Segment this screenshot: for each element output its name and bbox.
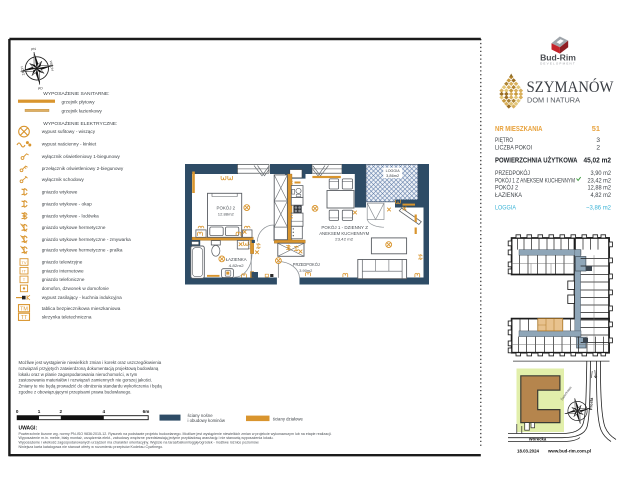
svg-text:SZYMANÓW: SZYMANÓW xyxy=(527,79,614,96)
svg-text:UWAGI:: UWAGI: xyxy=(19,425,38,431)
svg-text:grzejnik łazienkowy: grzejnik łazienkowy xyxy=(62,109,103,114)
svg-text:6m: 6m xyxy=(143,409,150,414)
svg-text:TV: TV xyxy=(21,260,26,265)
svg-text:Worecka: Worecka xyxy=(529,437,547,442)
svg-text:ŁAZIENKA: ŁAZIENKA xyxy=(495,192,523,199)
svg-text:tablica bezpiecznikowa mieszka: tablica bezpiecznikowa mieszkaniowa xyxy=(42,306,121,311)
svg-text:domofon, dzwonek w domofonie: domofon, dzwonek w domofonie xyxy=(42,286,110,291)
svg-text:3: 3 xyxy=(596,137,600,144)
svg-text:Zmiany te nie będą prowadzić d: Zmiany te nie będą prowadzić do obniżeni… xyxy=(19,384,163,389)
svg-text:LICZBA POKOI: LICZBA POKOI xyxy=(495,145,532,152)
svg-text:DOM I NATURA: DOM I NATURA xyxy=(527,96,581,105)
svg-text:www.bud-rim.com.pl: www.bud-rim.com.pl xyxy=(547,448,591,453)
svg-text:wypust zasilający - kuchnia in: wypust zasilający - kuchnia indukcyjna xyxy=(42,295,122,300)
svg-text:Wyposażenie m.in. meble, biały: Wyposażenie m.in. meble, biały montaż, u… xyxy=(19,436,274,440)
svg-text:1: 1 xyxy=(38,409,41,414)
svg-text:Możliwe jest wystąpienie niewi: Możliwe jest wystąpienie niewielkich zmi… xyxy=(19,360,162,365)
svg-text:45,02 m2: 45,02 m2 xyxy=(584,156,612,165)
svg-text:0: 0 xyxy=(16,409,19,414)
svg-text:wypust naścienny - kinkiet: wypust naścienny - kinkiet xyxy=(42,142,97,147)
svg-text:gniazdo wtykowe - okap: gniazdo wtykowe - okap xyxy=(42,202,92,207)
svg-text:IT: IT xyxy=(22,269,26,274)
svg-text:POKÓJ 2: POKÓJ 2 xyxy=(495,183,518,192)
svg-text:4,82 m2: 4,82 m2 xyxy=(591,192,612,199)
svg-text:3,86m2: 3,86m2 xyxy=(386,174,399,178)
svg-text:gniazdo telewizyjne: gniazdo telewizyjne xyxy=(42,260,83,265)
svg-text:23,42 m2: 23,42 m2 xyxy=(588,177,612,184)
svg-text:wypust sufitowy - wiszący: wypust sufitowy - wiszący xyxy=(42,129,96,134)
svg-text:ANEKSEM KUCHENNYM: ANEKSEM KUCHENNYM xyxy=(319,231,369,236)
svg-text:i obudowy kominów: i obudowy kominów xyxy=(188,418,226,423)
svg-text:POKÓJ 2: POKÓJ 2 xyxy=(217,205,236,210)
svg-text:12.88m2: 12.88m2 xyxy=(218,211,234,216)
svg-text:gniazdo wtykowe hermetyczne -: gniazdo wtykowe hermetyczne - zmywarka xyxy=(42,237,131,242)
svg-text:gniazdo telefoniczne: gniazdo telefoniczne xyxy=(42,277,85,282)
svg-text:Powierzchnie liczone wg. normy: Powierzchnie liczone wg. normy PN-ISO 98… xyxy=(19,432,332,436)
svg-text:grzejnik płytowy: grzejnik płytowy xyxy=(62,99,96,104)
svg-text:lokalu oraz w planie zagospoda: lokalu oraz w planie zagospodarowania ni… xyxy=(19,372,138,377)
svg-text:18.03.2024: 18.03.2024 xyxy=(517,448,540,453)
svg-text:wyłącznik oświetleniowy 1-bieg: wyłącznik oświetleniowy 1-biegunowy xyxy=(42,154,121,159)
svg-text:gniazdo wtykowe hermetyczne: gniazdo wtykowe hermetyczne xyxy=(42,225,106,230)
svg-text:WYPOSAŻENIE ELEKTRYCZNE:: WYPOSAŻENIE ELEKTRYCZNE: xyxy=(43,120,117,127)
svg-text:PIĘTRO: PIĘTRO xyxy=(495,137,513,144)
svg-text:Prosta: Prosta xyxy=(588,397,594,411)
svg-text:gniazdo wtykowe - lodówka: gniazdo wtykowe - lodówka xyxy=(42,214,99,219)
svg-text:LOGGIA: LOGGIA xyxy=(495,204,517,211)
svg-text:ściany działowe: ściany działowe xyxy=(273,416,304,421)
svg-text:POWIERZCHNIA UŻYTKOWA: POWIERZCHNIA UŻYTKOWA xyxy=(495,156,578,165)
svg-text:4.82m2: 4.82m2 xyxy=(229,263,244,268)
svg-text:TT: TT xyxy=(21,315,28,321)
svg-text:gniazdo internetowe: gniazdo internetowe xyxy=(42,268,84,273)
svg-text:POKÓJ 1 - DZIENNY Z: POKÓJ 1 - DZIENNY Z xyxy=(321,225,368,230)
svg-text:POKÓJ 1 Z ANEKSEM KUCHENNYM: POKÓJ 1 Z ANEKSEM KUCHENNYM xyxy=(495,175,575,184)
svg-text:51: 51 xyxy=(592,124,600,133)
svg-text:skrzynka teletechniczna: skrzynka teletechniczna xyxy=(42,314,92,319)
svg-text:rozwiązań przyjętych zatwierdz: rozwiązań przyjętych zatwierdzoną dokume… xyxy=(19,366,159,371)
svg-text:wyłącznik schodowy: wyłącznik schodowy xyxy=(42,177,85,182)
svg-text:przełącznik oświetleniowy 2-bi: przełącznik oświetleniowy 2-biegunowy xyxy=(42,166,124,171)
svg-text:Niniejsza karta katalogowa nie: Niniejsza karta katalogowa nie stanowi o… xyxy=(19,445,164,449)
svg-text:DEVELOPMENT: DEVELOPMENT xyxy=(540,62,576,66)
svg-text:PRZEDPOKÓJ: PRZEDPOKÓJ xyxy=(293,262,320,267)
svg-text:zastosowania materiałów i rozw: zastosowania materiałów i rozwiązań zami… xyxy=(19,378,153,383)
svg-text:Wyposażenie i wielkość zagospo: Wyposażenie i wielkość zagospodarowanych… xyxy=(19,441,260,445)
svg-text:2: 2 xyxy=(596,145,600,152)
svg-text:2: 2 xyxy=(60,409,63,414)
svg-text:NR MIESZKANIA: NR MIESZKANIA xyxy=(495,124,543,133)
svg-text:4: 4 xyxy=(103,409,106,414)
svg-text:~3,86 m2: ~3,86 m2 xyxy=(586,204,611,211)
svg-text:3,90 m2: 3,90 m2 xyxy=(591,170,612,177)
svg-text:23,42 m2: 23,42 m2 xyxy=(335,237,353,242)
svg-text:gniazdo wtykowe hermetyczne -: gniazdo wtykowe hermetyczne - pralka xyxy=(42,248,123,253)
svg-text:LOGGIA: LOGGIA xyxy=(386,169,401,173)
svg-text:12,88 m2: 12,88 m2 xyxy=(588,185,612,192)
svg-text:zgodne z obowiązującymi przepi: zgodne z obowiązującymi przepisami prawa… xyxy=(19,390,132,395)
svg-text:PRZEDPOKÓJ: PRZEDPOKÓJ xyxy=(495,168,530,177)
svg-text:TM: TM xyxy=(20,306,28,312)
svg-text:gniazdo wtykowe: gniazdo wtykowe xyxy=(42,190,78,195)
svg-text:ŁAZIENKA: ŁAZIENKA xyxy=(226,257,247,262)
svg-text:WYPOSAŻENIE SANITARNE:: WYPOSAŻENIE SANITARNE: xyxy=(43,90,109,97)
